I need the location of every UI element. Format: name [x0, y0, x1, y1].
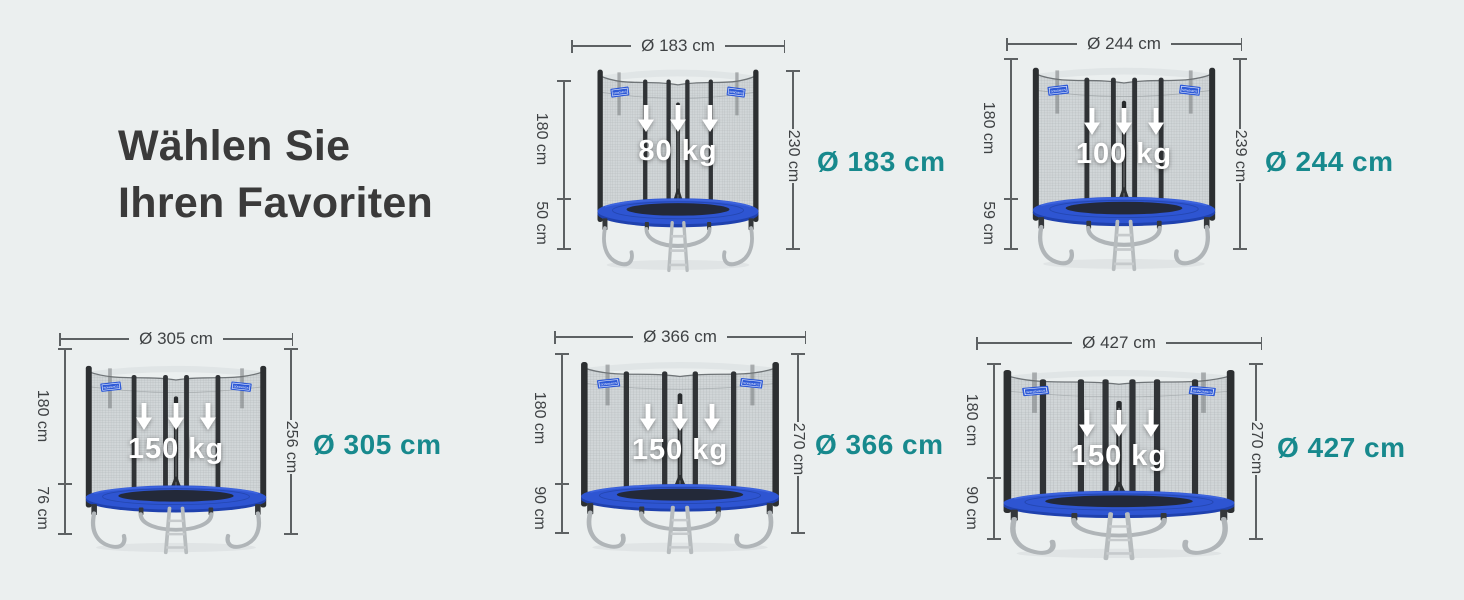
dimension-line [573, 45, 632, 47]
left-height-dimension-line [993, 363, 995, 538]
dimension-tick [58, 348, 72, 350]
diameter-label: Ø 366 cm [643, 327, 717, 347]
trampoline-illustration: SONGMICSSONGMICS [1030, 56, 1218, 272]
net-height-label: 180 cm [532, 113, 550, 165]
size-callout: Ø 244 cm [1265, 146, 1394, 178]
diameter-dimension: Ø 305 cm [59, 329, 293, 349]
left-height-dimension-line [1010, 58, 1012, 248]
dimension-tick [292, 333, 294, 346]
total-height-dimension-line [290, 348, 292, 420]
diameter-label: Ø 427 cm [1082, 333, 1156, 353]
diameter-dimension: Ø 427 cm [976, 333, 1262, 353]
dimension-line [725, 45, 784, 47]
dimension-line [61, 338, 130, 340]
total-height-dimension-line [1255, 363, 1257, 421]
trampoline-figure-4: Ø 427 cm180 cm90 cm270 cmSONGMICSSONGMIC… [950, 325, 1464, 587]
total-height-label: 230 cm [784, 130, 802, 182]
total-height-dimension-line [1255, 475, 1257, 538]
headline: Wählen Sie Ihren Favoriten [118, 118, 433, 232]
dimension-line [1166, 342, 1261, 344]
dimension-tick [284, 533, 298, 535]
dimension-tick [791, 532, 805, 534]
trampoline-illustration: SONGMICSSONGMICS [83, 355, 269, 555]
trampoline-figure-3: Ø 366 cm180 cm90 cm270 cmSONGMICSSONGMIC… [505, 325, 970, 587]
dimension-tick [786, 70, 800, 72]
total-height-dimension-line [1239, 58, 1241, 129]
trampoline-illustration: SONGMICSSONGMICS [1000, 359, 1238, 561]
dimension-tick [1004, 198, 1018, 200]
dimension-tick [557, 198, 571, 200]
dimension-line [727, 336, 805, 338]
frame-height-label: 76 cm [33, 486, 51, 530]
size-callout: Ø 366 cm [815, 429, 944, 461]
dimension-tick [555, 532, 569, 534]
diameter-dimension: Ø 183 cm [571, 36, 785, 56]
total-height-dimension-line [290, 474, 292, 533]
dimension-line [978, 342, 1073, 344]
diameter-label: Ø 183 cm [641, 36, 715, 56]
trampoline-figure-2: Ø 305 cm180 cm76 cm256 cmSONGMICSSONGMIC… [20, 325, 475, 587]
total-height-label: 270 cm [789, 423, 807, 475]
total-height-dimension-line [797, 353, 799, 422]
net-height-label: 180 cm [962, 394, 980, 446]
frame-height-label: 90 cm [962, 486, 980, 530]
left-height-dimension-line [563, 80, 565, 248]
dimension-tick [58, 533, 72, 535]
frame-height-label: 50 cm [532, 201, 550, 245]
dimension-tick [786, 248, 800, 250]
trampoline-size-infographic: Wählen Sie Ihren Favoriten Ø 183 cm180 c… [0, 0, 1464, 600]
net-height-label: 180 cm [33, 389, 51, 441]
dimension-tick [58, 483, 72, 485]
dimension-tick [1249, 363, 1263, 365]
dimension-tick [557, 248, 571, 250]
dimension-tick [557, 80, 571, 82]
dimension-tick [1249, 538, 1263, 540]
dimension-tick [784, 40, 786, 53]
total-height-label: 270 cm [1247, 422, 1265, 474]
diameter-dimension: Ø 244 cm [1006, 34, 1242, 54]
trampoline-figure-1: Ø 244 cm180 cm59 cm239 cmSONGMICSSONGMIC… [960, 28, 1432, 290]
dimension-tick [987, 363, 1001, 365]
net-height-label: 180 cm [979, 102, 997, 154]
dimension-tick [555, 353, 569, 355]
dimension-tick [805, 331, 807, 344]
total-height-dimension-line [797, 476, 799, 532]
dimension-tick [284, 348, 298, 350]
headline-line1: Wählen Sie [118, 118, 433, 175]
dimension-tick [987, 538, 1001, 540]
dimension-tick [1233, 248, 1247, 250]
dimension-tick [1233, 58, 1247, 60]
dimension-tick [987, 477, 1001, 479]
total-height-dimension-line [792, 70, 794, 129]
diameter-label: Ø 305 cm [139, 329, 213, 349]
dimension-tick [555, 483, 569, 485]
net-height-label: 180 cm [530, 392, 548, 444]
headline-line2: Ihren Favoriten [118, 175, 433, 232]
dimension-tick [1241, 38, 1243, 51]
dimension-tick [1004, 248, 1018, 250]
dimension-tick [1261, 337, 1263, 350]
dimension-line [1171, 43, 1241, 45]
left-height-dimension-line [561, 353, 563, 532]
size-callout: Ø 183 cm [817, 146, 946, 178]
trampoline-illustration: SONGMICSSONGMICS [578, 351, 782, 555]
total-height-label: 239 cm [1231, 130, 1249, 182]
trampoline-illustration: SONGMICSSONGMICS [595, 58, 761, 273]
total-height-dimension-line [792, 183, 794, 248]
total-height-label: 256 cm [282, 421, 300, 473]
size-callout: Ø 305 cm [313, 429, 442, 461]
dimension-line [223, 338, 292, 340]
dimension-line [556, 336, 634, 338]
left-height-dimension-line [64, 348, 66, 533]
diameter-label: Ø 244 cm [1087, 34, 1161, 54]
frame-height-label: 90 cm [530, 486, 548, 530]
frame-height-label: 59 cm [979, 201, 997, 245]
diameter-dimension: Ø 366 cm [554, 327, 806, 347]
dimension-tick [1004, 58, 1018, 60]
total-height-dimension-line [1239, 183, 1241, 248]
trampoline-figure-0: Ø 183 cm180 cm50 cm230 cmSONGMICSSONGMIC… [515, 28, 955, 290]
dimension-line [1008, 43, 1078, 45]
size-callout: Ø 427 cm [1277, 432, 1406, 464]
dimension-tick [791, 353, 805, 355]
